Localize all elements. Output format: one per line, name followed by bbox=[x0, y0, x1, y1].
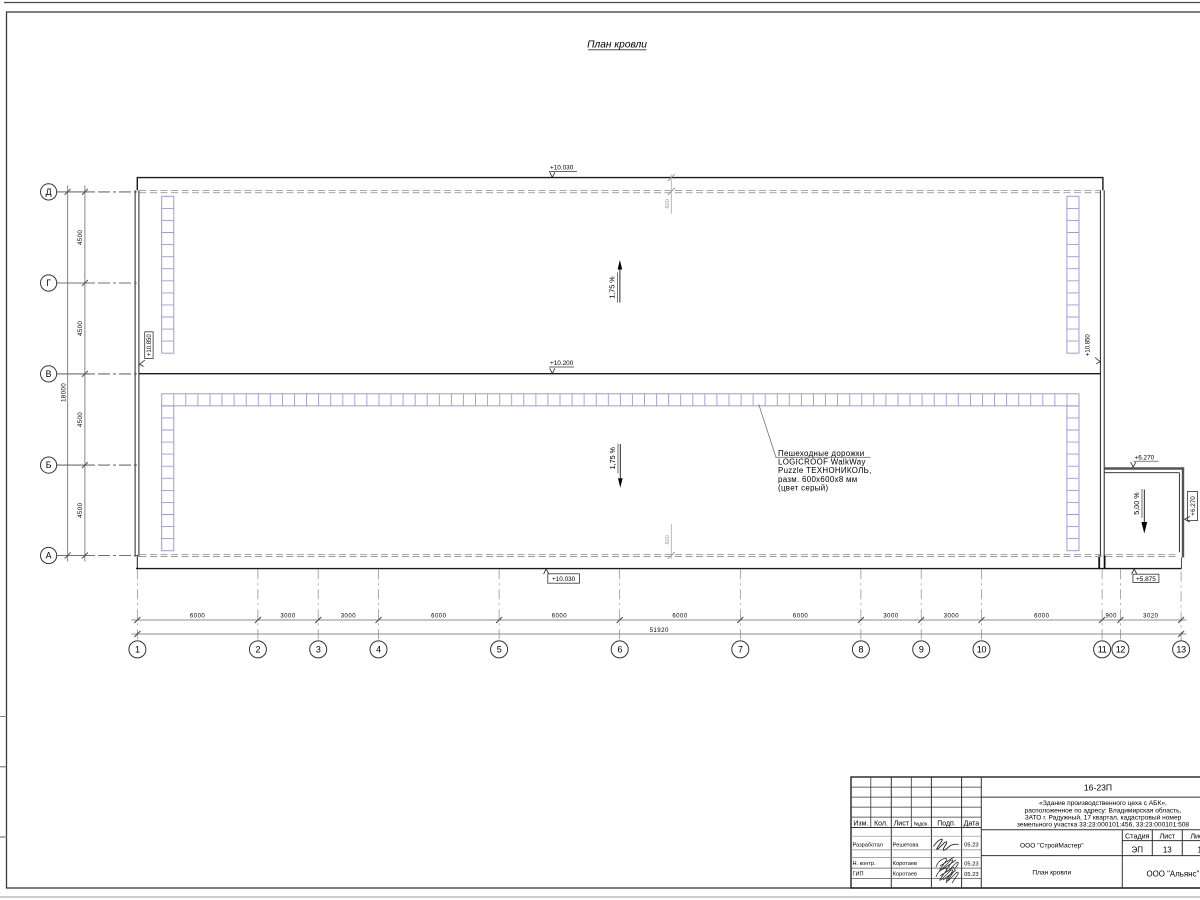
svg-text:600: 600 bbox=[665, 535, 671, 544]
svg-text:+10.850: +10.850 bbox=[147, 334, 153, 357]
svg-text:4500: 4500 bbox=[77, 321, 84, 336]
svg-text:4500: 4500 bbox=[77, 502, 84, 517]
svg-text:9: 9 bbox=[919, 645, 924, 655]
svg-text:Г: Г bbox=[46, 278, 51, 288]
svg-text:5,00 %: 5,00 % bbox=[1132, 492, 1141, 515]
svg-text:3020: 3020 bbox=[1143, 613, 1159, 619]
svg-text:Коротаев: Коротаев bbox=[893, 871, 917, 877]
svg-text:«Здание производственного цеха: «Здание производственного цеха с АБК», bbox=[1039, 800, 1167, 807]
svg-text:6000: 6000 bbox=[431, 613, 447, 619]
svg-text:ГИП: ГИП bbox=[853, 871, 864, 877]
svg-text:+5.875: +5.875 bbox=[1136, 576, 1156, 583]
svg-text:4500: 4500 bbox=[77, 412, 84, 427]
svg-text:3000: 3000 bbox=[341, 613, 357, 619]
svg-text:6000: 6000 bbox=[552, 613, 568, 619]
svg-text:3000: 3000 bbox=[944, 613, 960, 619]
svg-text:6000: 6000 bbox=[1034, 613, 1050, 619]
svg-text:6000: 6000 bbox=[672, 613, 688, 619]
svg-text:+10.200: +10.200 bbox=[550, 360, 574, 367]
svg-text:А: А bbox=[46, 551, 52, 561]
svg-text:Изм.: Изм. bbox=[853, 821, 868, 828]
svg-text:Решетова: Решетова bbox=[893, 842, 920, 848]
svg-text:Д: Д bbox=[46, 187, 52, 197]
svg-text:Коротаев: Коротаев bbox=[893, 861, 917, 867]
svg-text:13: 13 bbox=[1163, 845, 1172, 854]
svg-text:земельного участка 33:23:00010: земельного участка 33:23:000101:456, 33:… bbox=[1017, 822, 1190, 829]
svg-text:Стадия: Стадия bbox=[1125, 832, 1150, 841]
svg-text:3: 3 bbox=[316, 645, 321, 655]
svg-text:+10.030: +10.030 bbox=[552, 576, 576, 583]
svg-text:1: 1 bbox=[135, 645, 140, 655]
svg-text:1,75 %: 1,75 % bbox=[608, 276, 617, 299]
svg-text:600: 600 bbox=[665, 199, 671, 208]
svg-text:ЭП: ЭП bbox=[1132, 845, 1144, 854]
svg-text:Н. контр.: Н. контр. bbox=[853, 861, 877, 867]
svg-text:№док.: №док. bbox=[914, 822, 929, 828]
svg-text:расположенное по адресу: Влади: расположенное по адресу: Владимирская об… bbox=[1025, 806, 1182, 814]
svg-text:Кол.: Кол. bbox=[874, 821, 888, 828]
svg-text:8: 8 bbox=[859, 645, 864, 655]
svg-text:ЗАТО г. Радужный, 17 квартал,: ЗАТО г. Радужный, 17 квартал, кадастровы… bbox=[1025, 814, 1182, 822]
svg-text:Разработал: Разработал bbox=[853, 842, 883, 848]
svg-text:Лист: Лист bbox=[894, 821, 910, 828]
svg-text:+10.850: +10.850 bbox=[1086, 334, 1092, 357]
svg-text:10: 10 bbox=[977, 645, 987, 655]
svg-text:5: 5 bbox=[497, 645, 502, 655]
svg-text:Дата: Дата bbox=[964, 821, 980, 828]
svg-text:11: 11 bbox=[1098, 645, 1107, 655]
svg-text:План кровли: План кровли bbox=[1032, 870, 1071, 877]
svg-text:6000: 6000 bbox=[793, 613, 809, 619]
svg-text:Подп.: Подп. bbox=[937, 821, 956, 828]
svg-text:6: 6 bbox=[617, 645, 622, 655]
svg-text:4: 4 bbox=[376, 645, 381, 655]
svg-text:3000: 3000 bbox=[280, 613, 296, 619]
svg-text:1,75 %: 1,75 % bbox=[608, 446, 617, 469]
svg-text:05.23: 05.23 bbox=[964, 861, 979, 867]
svg-text:6000: 6000 bbox=[190, 613, 206, 619]
svg-text:2: 2 bbox=[256, 645, 261, 655]
svg-text:+6.270: +6.270 bbox=[1190, 496, 1197, 516]
svg-text:51920: 51920 bbox=[650, 627, 669, 634]
svg-text:Б: Б bbox=[46, 460, 52, 470]
svg-text:3000: 3000 bbox=[883, 613, 899, 619]
svg-text:13: 13 bbox=[1176, 645, 1186, 655]
svg-text:16-23П: 16-23П bbox=[1084, 783, 1112, 793]
svg-text:900: 900 bbox=[1105, 613, 1117, 619]
svg-text:ООО "Альянс": ООО "Альянс" bbox=[1147, 870, 1200, 879]
svg-text:Лист: Лист bbox=[1159, 832, 1175, 841]
svg-text:Листов: Листов bbox=[1190, 832, 1200, 841]
svg-text:+10.030: +10.030 bbox=[550, 165, 574, 172]
svg-text:7: 7 bbox=[738, 645, 743, 655]
svg-text:План кровли: План кровли bbox=[587, 39, 647, 50]
svg-text:12: 12 bbox=[1116, 645, 1126, 655]
svg-text:+6.270: +6.270 bbox=[1135, 455, 1155, 462]
svg-text:05.23: 05.23 bbox=[964, 843, 979, 849]
svg-text:В: В bbox=[46, 369, 52, 379]
svg-text:4500: 4500 bbox=[77, 230, 84, 245]
svg-text:ООО "СтройМастер": ООО "СтройМастер" bbox=[1020, 842, 1084, 850]
svg-text:(цвет серый): (цвет серый) bbox=[778, 483, 829, 492]
svg-text:05.23: 05.23 bbox=[964, 872, 979, 878]
svg-text:18000: 18000 bbox=[60, 383, 67, 402]
